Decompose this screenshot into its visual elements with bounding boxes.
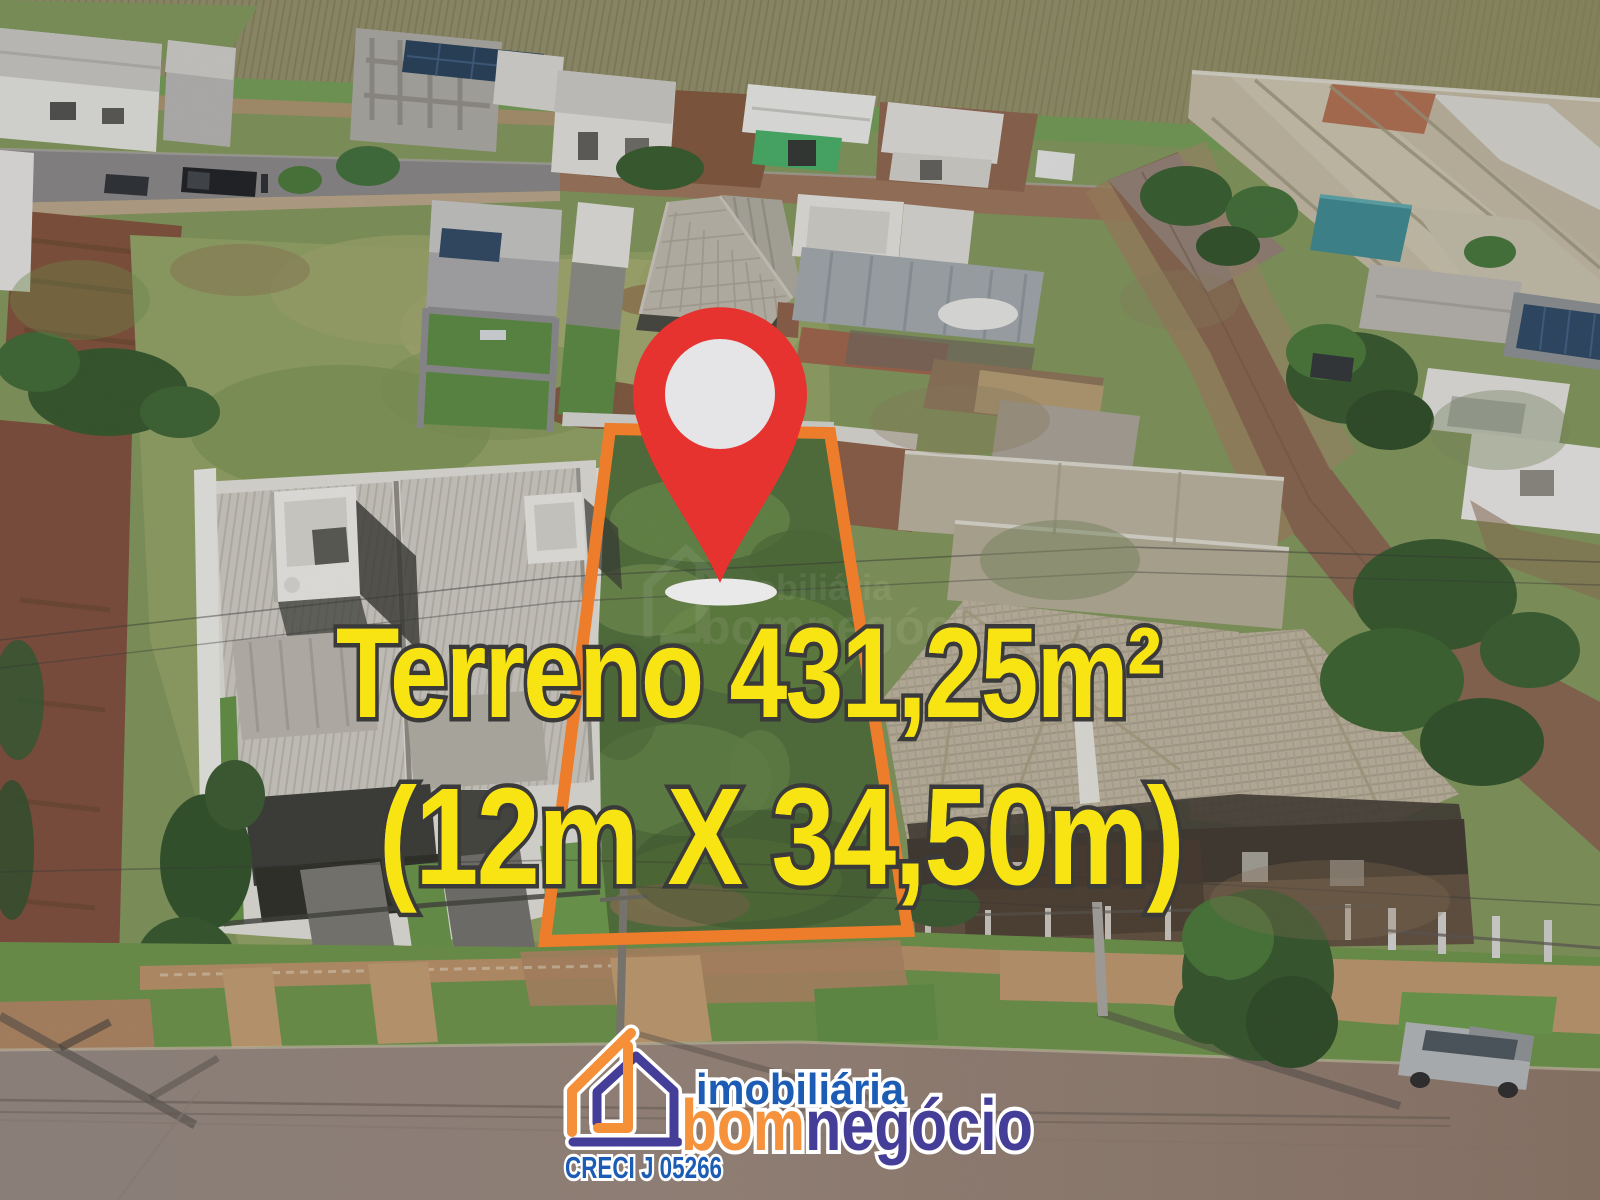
- svg-text:(12m X 34,50m): (12m X 34,50m): [379, 760, 1183, 914]
- svg-text:CRECI J 05266: CRECI J 05266: [565, 1150, 722, 1185]
- svg-text:Terreno 431,25m²: Terreno 431,25m²: [336, 602, 1160, 745]
- svg-text:negócio: negócio: [805, 1086, 1033, 1166]
